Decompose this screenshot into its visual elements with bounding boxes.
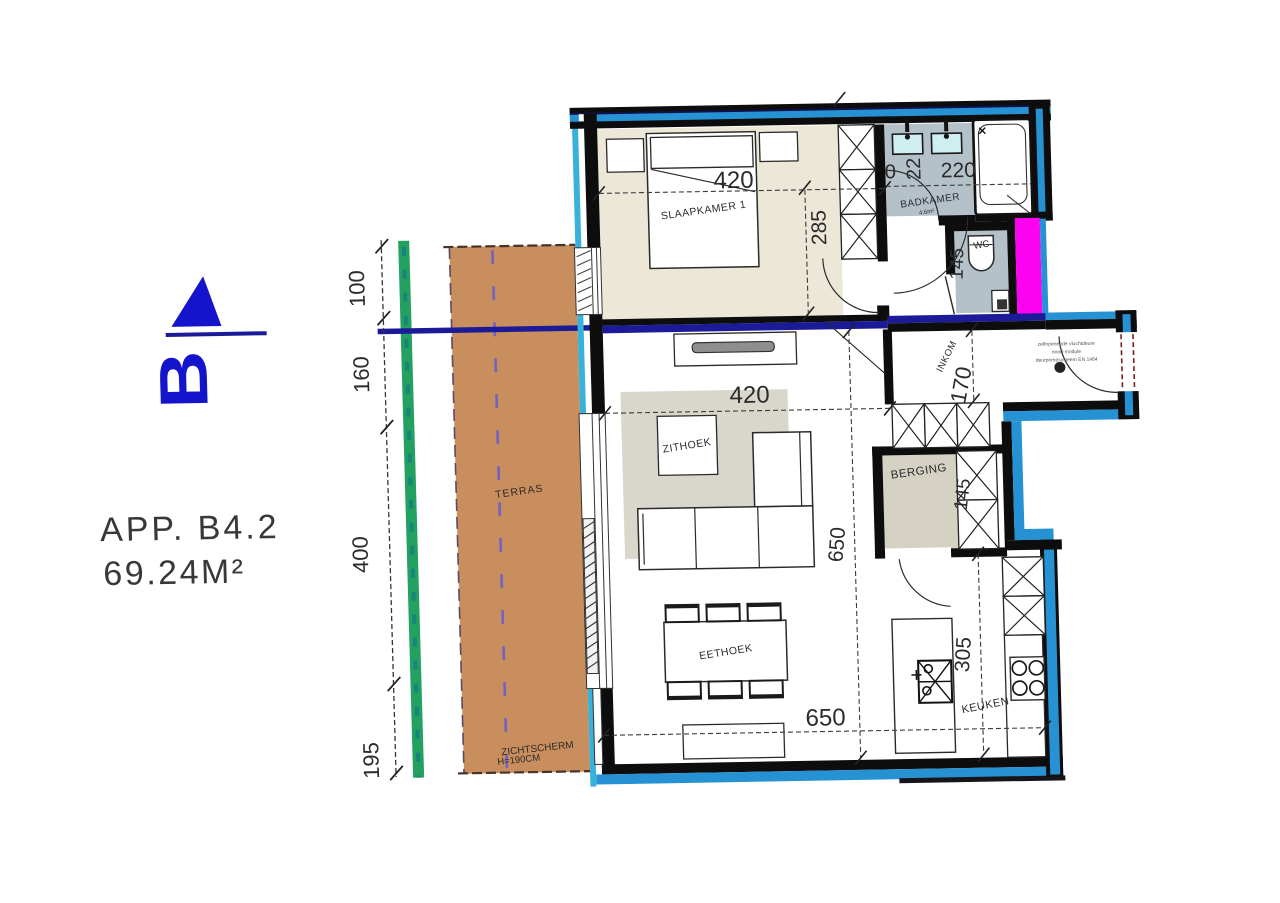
- svg-text:KEUKEN: KEUKEN: [961, 695, 1011, 716]
- svg-text:69.24M²: 69.24M²: [103, 553, 246, 593]
- svg-text:420: 420: [729, 381, 770, 409]
- svg-text:APP. B4.2: APP. B4.2: [100, 508, 281, 549]
- svg-text:deurpompsysteem EN 1464: deurpompsysteem EN 1464: [1036, 357, 1098, 364]
- svg-text:195: 195: [358, 742, 384, 779]
- svg-text:zelfopenende vluchtdeure: zelfopenende vluchtdeure: [1038, 341, 1096, 348]
- svg-text:650: 650: [805, 704, 846, 732]
- svg-text:420: 420: [713, 167, 754, 195]
- svg-text:400: 400: [347, 536, 373, 573]
- svg-text:nood-module: nood-module: [1052, 349, 1082, 356]
- svg-text:160: 160: [348, 356, 374, 393]
- svg-text:145: 145: [951, 477, 975, 511]
- svg-text:285: 285: [807, 210, 831, 245]
- svg-text:145: 145: [947, 248, 969, 280]
- svg-text:305: 305: [951, 636, 976, 673]
- svg-text:170: 170: [945, 365, 976, 406]
- svg-text:B: B: [145, 350, 223, 409]
- svg-text:650: 650: [824, 526, 850, 563]
- svg-text:0: 0: [885, 161, 897, 183]
- svg-text:100: 100: [344, 270, 370, 307]
- svg-text:220: 220: [941, 159, 977, 183]
- svg-text:22: 22: [903, 158, 926, 181]
